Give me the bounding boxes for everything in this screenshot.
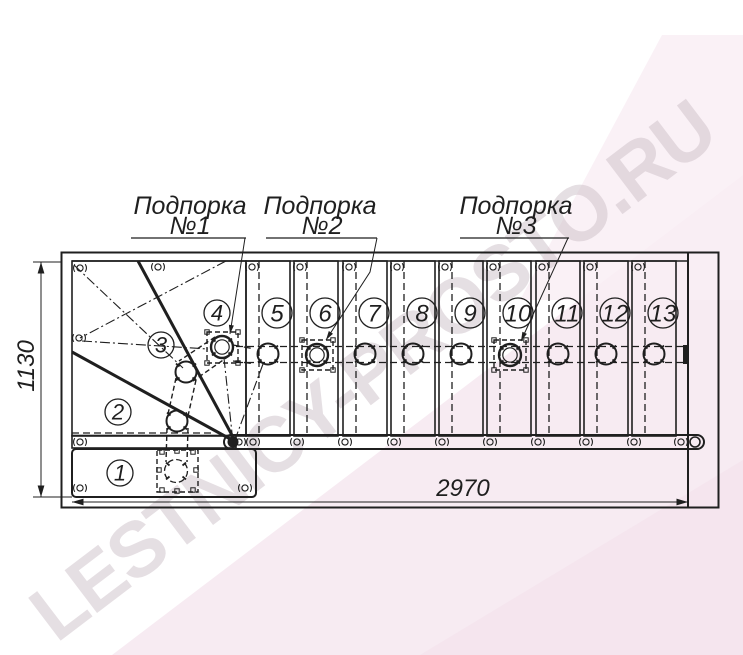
fastener-clip-icon [152,263,165,271]
dimension-arrow-icon [38,486,45,498]
module-joint-icon [258,344,279,365]
fastener-clip-icon [246,263,259,271]
staircase-plan-svg: LESTNICY-PROSTO.RU 1130 2970 Подпорка №1… [0,0,743,655]
step-number-12: 12 [602,300,629,327]
step-number-4: 4 [211,301,223,326]
step-number-10: 10 [505,300,532,327]
module-joint-icon [211,336,233,358]
step-number-11: 11 [555,300,580,327]
dimension-height: 1130 [13,262,72,497]
spine-end-block [683,345,689,364]
step-number-9: 9 [463,300,476,327]
winder-edge-3-4 [138,261,233,437]
dimension-arrow-icon [38,262,45,274]
stringer-left-hub [228,437,239,448]
dimension-arrow-icon [72,499,84,506]
winder-centerline [82,341,208,349]
support-1-plate [205,330,240,365]
dimension-height-value: 1130 [13,340,40,392]
fastener-clip-icon [74,264,87,272]
support-label-1: Подпорка №1 [131,192,247,334]
step-number-1: 1 [114,461,126,486]
module-joint-icon [176,362,197,383]
fastener-clip-icon [391,263,404,271]
support-label-1-number: №1 [170,212,211,240]
winder-centerline [80,261,226,338]
fastener-clip-icon [74,438,87,446]
step-number-3: 3 [155,333,168,358]
support-label-3-number: №3 [496,212,537,240]
chain-corridor [188,380,196,416]
chain-corridor [193,356,229,381]
module-joint-icon [167,411,188,432]
support-label-2-number: №2 [302,212,343,240]
dimension-length-value: 2970 [435,475,490,502]
fastener-clip-icon [294,263,307,271]
leader-arrow-icon [326,331,333,340]
fastener-clip-icon [74,484,87,492]
step-number-5: 5 [270,300,284,327]
fastener-clip-icon [343,263,356,271]
step-number-8: 8 [415,300,429,327]
module-joint-icon [306,344,328,366]
step-number-13: 13 [650,300,677,327]
drawing-canvas: LESTNICY-PROSTO.RU 1130 2970 Подпорка №1… [0,0,743,655]
step-number-2: 2 [111,400,124,425]
step-number-6: 6 [318,300,332,327]
step-number-7: 7 [367,300,382,327]
